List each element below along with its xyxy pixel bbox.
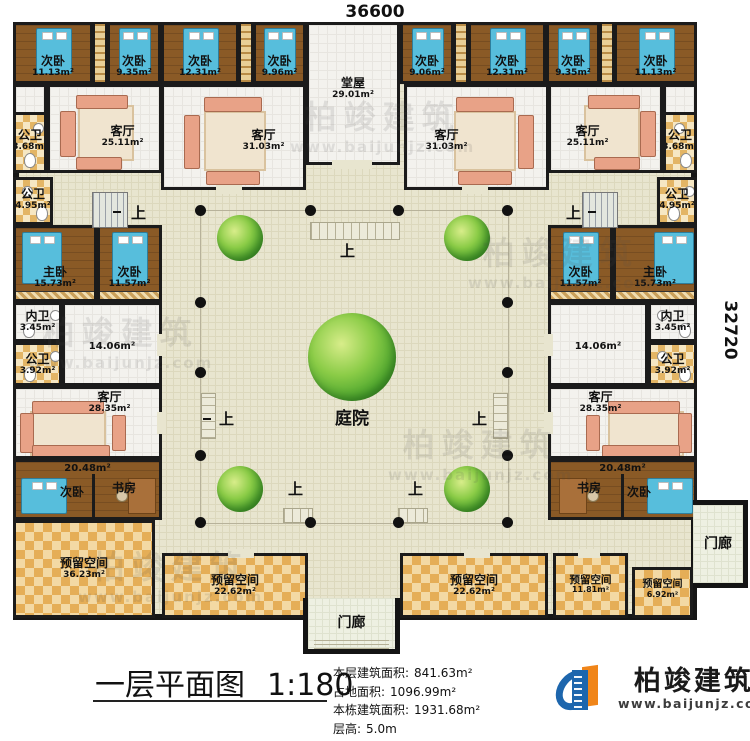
column-dot xyxy=(502,517,513,528)
closet xyxy=(93,22,107,84)
step-up-label: 上 xyxy=(408,478,423,499)
floorplan-canvas: 36600 32720 庭院 上 上 上 上 上 上 上 次卧11.13m² xyxy=(0,0,750,741)
step-tick xyxy=(113,211,121,213)
room-reserved: 预留空间11.81m² xyxy=(553,553,628,618)
room-bedroom: 次卧11.57m² xyxy=(548,225,613,302)
room-living: 客厅25.11m² xyxy=(548,84,663,173)
tree-icon xyxy=(217,215,263,261)
room-bedroom-study: 20.48m² 次卧 书房 xyxy=(13,459,162,520)
room-public-bath: 公卫4.95m² xyxy=(13,177,53,225)
step-up-label: 上 xyxy=(219,408,234,429)
tree-icon xyxy=(444,215,490,261)
column-dot xyxy=(195,517,206,528)
dimension-right: 32720 xyxy=(720,300,740,360)
tree-icon xyxy=(444,466,490,512)
step-up-label: 上 xyxy=(131,202,146,223)
column-dot xyxy=(195,205,206,216)
column-dot xyxy=(305,517,316,528)
column-dot xyxy=(195,367,206,378)
closet xyxy=(239,22,253,84)
room-bedroom: 次卧11.13m² xyxy=(614,22,697,84)
room-reserved: 预留空间22.62m² xyxy=(400,553,548,618)
step-up-label: 上 xyxy=(340,240,355,261)
column-dot xyxy=(393,205,404,216)
dimension-top: 36600 xyxy=(0,2,750,22)
column-dot xyxy=(195,450,206,461)
room-reserved: 预留空间6.92m² xyxy=(632,567,693,618)
room-reserved: 预留空间36.23m² xyxy=(13,520,155,618)
column-dot xyxy=(393,517,404,528)
staircase xyxy=(92,192,128,228)
logo-name: 柏竣建筑 xyxy=(634,667,750,697)
room-ensuite-bath: 内卫3.45m² xyxy=(13,302,62,342)
room-public-bath: 公卫4.95m² xyxy=(657,177,697,225)
room-master-bedroom: 主卧15.73m² xyxy=(613,225,697,302)
room-bedroom: 次卧9.96m² xyxy=(253,22,306,84)
room-living: 客厅31.03m² xyxy=(404,84,549,190)
column-dot xyxy=(502,205,513,216)
step-tick xyxy=(588,211,596,213)
room-living: 客厅28.35m² xyxy=(13,386,162,459)
column-dot xyxy=(305,205,316,216)
room-bedroom: 次卧12.31m² xyxy=(468,22,546,84)
room-central-hall: 堂屋29.01m² xyxy=(306,22,400,165)
logo-url: www.baijunjz.com xyxy=(618,696,750,711)
courtyard-label: 庭院 xyxy=(310,404,394,429)
room-public-bath: 公卫3.92m² xyxy=(648,342,697,386)
column-dot xyxy=(502,367,513,378)
room-study-bedroom: 20.48m² 书房 次卧 xyxy=(548,459,697,520)
corridor xyxy=(663,84,697,115)
column-dot xyxy=(502,297,513,308)
area-info: 本层建筑面积:841.63m² 占地面积:1096.99m² 本栋建筑面积:19… xyxy=(333,664,480,738)
steps xyxy=(493,393,508,439)
room-living: 客厅31.03m² xyxy=(161,84,306,190)
step-up-label: 上 xyxy=(288,478,303,499)
room-public-bath: 公卫3.92m² xyxy=(13,342,62,386)
plan-title: 一层平面图1:180 xyxy=(95,660,353,704)
tree-icon xyxy=(217,466,263,512)
room-hall: 14.06m² xyxy=(548,302,648,386)
company-logo: 柏竣建筑 www.baijunjz.com xyxy=(558,660,750,718)
room-living: 客厅28.35m² xyxy=(548,386,697,459)
closet xyxy=(600,22,614,84)
room-ensuite-bath: 内卫3.45m² xyxy=(648,302,697,342)
room-public-bath: 公卫3.68m² xyxy=(663,112,697,173)
room-reserved: 预留空间22.62m² xyxy=(162,553,308,618)
room-bedroom: 次卧11.13m² xyxy=(13,22,93,84)
steps xyxy=(310,222,400,240)
porch-bottom: 门廊 xyxy=(303,598,400,654)
room-bedroom: 次卧12.31m² xyxy=(161,22,239,84)
room-bedroom: 次卧9.35m² xyxy=(107,22,161,84)
step-up-label: 上 xyxy=(472,408,487,429)
logo-building-icon xyxy=(558,660,610,718)
staircase xyxy=(582,192,618,228)
steps xyxy=(201,393,216,439)
column-dot xyxy=(502,450,513,461)
closet xyxy=(454,22,468,84)
room-hall: 14.06m² xyxy=(62,302,162,386)
room-public-bath: 公卫3.68m² xyxy=(13,112,47,173)
corridor xyxy=(13,84,47,115)
tree-icon xyxy=(308,313,396,401)
porch-right: 门廊 xyxy=(693,500,748,588)
room-bedroom: 次卧11.57m² xyxy=(97,225,162,302)
room-living: 客厅25.11m² xyxy=(47,84,162,173)
step-tick xyxy=(203,418,211,420)
step-up-label: 上 xyxy=(566,202,581,223)
column-dot xyxy=(195,297,206,308)
title-underline xyxy=(93,700,327,702)
room-bedroom: 次卧9.35m² xyxy=(546,22,600,84)
room-bedroom: 次卧9.06m² xyxy=(400,22,454,84)
room-master-bedroom: 主卧15.73m² xyxy=(13,225,97,302)
